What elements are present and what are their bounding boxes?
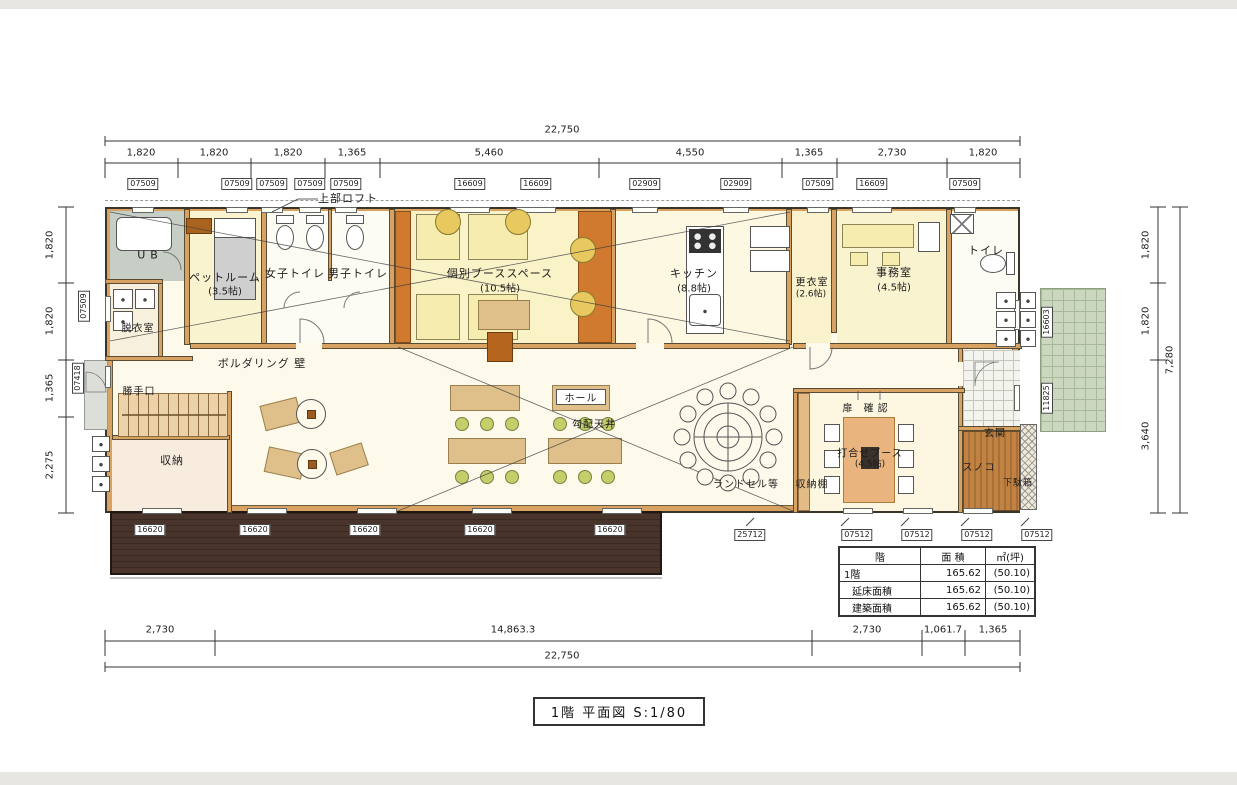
washbasin (1020, 330, 1036, 347)
area-tsubo: (50.10) (986, 582, 1036, 599)
hall-chair (480, 470, 494, 484)
toilet-tank (276, 215, 294, 224)
toilet-tank (306, 215, 324, 224)
washer (113, 289, 133, 309)
toilet-tank (346, 215, 364, 224)
dim-bottom-1: 14,863.3 (491, 625, 536, 636)
room-label-booth-space-size: (10.5帖) (480, 280, 520, 295)
window-code: 16620 (349, 524, 380, 536)
window-code: 16609 (520, 178, 551, 190)
door-gap (806, 343, 830, 349)
dim-bottom-2: 2,730 (853, 625, 882, 636)
washbasin (996, 292, 1016, 309)
area-table-header-row: 階 面 積 ㎡(坪) (839, 547, 1035, 565)
room-label-kitchen-door: 勝手口 (123, 383, 156, 398)
washbasin (996, 311, 1016, 328)
room-label-pet-room-size: (3.5帖) (208, 283, 242, 298)
room-label-bouldering: ボルダリング 壁 (218, 355, 307, 371)
copier (918, 222, 940, 252)
window-code: 11825 (1041, 382, 1053, 413)
toilet-bowl (276, 225, 294, 250)
window-code: 07509 (949, 178, 980, 190)
window-code: 07512 (1021, 529, 1052, 541)
window (843, 508, 873, 514)
window-code: 07509 (802, 178, 833, 190)
area-table-col-floor: 階 (839, 547, 921, 565)
meeting-chair (898, 476, 914, 494)
wall (831, 209, 837, 333)
area-table-row: 延床面積 165.62 (50.10) (839, 582, 1035, 599)
window-code: 07509 (127, 178, 158, 190)
window (723, 207, 749, 213)
hall-chair (505, 470, 519, 484)
room-label-sloped-ceiling: 勾配天井 (572, 416, 616, 431)
scan-edge-bottom (0, 772, 1237, 785)
window (852, 207, 892, 213)
window-code: 16620 (239, 524, 270, 536)
booth-stool (487, 332, 513, 362)
dim-top-total: 22,750 (545, 125, 580, 136)
dim-top-8: 1,820 (969, 148, 998, 159)
window (807, 207, 829, 213)
stove (689, 229, 721, 253)
room-label-meeting-booth-size: (4.5帖) (855, 457, 885, 470)
outdoor-unit (92, 456, 110, 472)
scan-edge-top (0, 0, 1237, 9)
window (602, 508, 642, 514)
booth-round-table (570, 237, 596, 263)
booth-square-table (478, 300, 530, 330)
hall-chair (505, 417, 519, 431)
dim-right-1: 1,820 (1141, 307, 1152, 336)
hall-table (548, 438, 622, 464)
dim-bottom-4: 1,365 (979, 625, 1008, 636)
window-code: 16620 (464, 524, 495, 536)
office-desk (842, 224, 914, 248)
wall (105, 356, 193, 361)
bathtub (116, 217, 172, 251)
window (357, 508, 397, 514)
outdoor-unit (92, 476, 110, 492)
dim-bottom-3: 1,061.7 (924, 625, 962, 636)
window (632, 207, 658, 213)
kitchen-sink (689, 294, 721, 326)
room-label-changing-room-size: (2.6帖) (796, 287, 826, 300)
room-label-door-check: 扉 確認 (842, 400, 891, 415)
room-storage (112, 440, 228, 511)
dim-top-7: 2,730 (878, 148, 907, 159)
room-label-kitchen-size: (8.8帖) (677, 280, 711, 295)
hall-chair (553, 470, 567, 484)
window-code: 02909 (720, 178, 751, 190)
door-gap (296, 343, 322, 349)
shoe-box-hatch (1020, 424, 1037, 510)
window-code: 16609 (856, 178, 887, 190)
room-label-mens-toilet: 男子トイレ (328, 265, 388, 281)
window-code: 07512 (841, 529, 872, 541)
window-code: 25712 (734, 529, 765, 541)
room-label-randoseru: ランドセル等 (713, 476, 779, 491)
office-chair (850, 252, 868, 266)
washbasin (1020, 311, 1036, 328)
booth-wood-divider (395, 211, 411, 343)
hall-sofa (450, 385, 520, 411)
dim-top-3: 1,365 (338, 148, 367, 159)
dim-left-1: 1,820 (45, 307, 56, 336)
room-label-toilet: トイレ (968, 242, 1004, 258)
toilet-tank (1006, 252, 1015, 275)
booth-wood-divider (578, 211, 612, 343)
window-code: 02909 (629, 178, 660, 190)
area-value: 165.62 (921, 599, 986, 617)
area-table-row: 1階 165.62 (50.10) (839, 565, 1035, 582)
booth-round-table (570, 291, 596, 317)
dim-right-0: 1,820 (1141, 231, 1152, 260)
area-floor: 延床面積 (839, 582, 921, 599)
dim-top-5: 4,550 (676, 148, 705, 159)
window (247, 508, 287, 514)
room-label-sunoko: スノコ (963, 459, 996, 474)
area-table-row: 建築面積 165.62 (50.10) (839, 599, 1035, 617)
outdoor-unit (92, 436, 110, 452)
room-label-shelf: 収納棚 (796, 476, 829, 491)
window-code: 07512 (961, 529, 992, 541)
pet-bed-pillow (214, 218, 256, 238)
hand-wash-unit (950, 214, 974, 234)
toilet-bowl (346, 225, 364, 250)
room-label-womens-toilet: 女子トイレ (265, 265, 325, 281)
booth-bench (416, 294, 460, 340)
dim-top-2: 1,820 (274, 148, 303, 159)
hall-chair (553, 417, 567, 431)
washbasin (1020, 292, 1036, 309)
window-code: 07418 (72, 362, 84, 393)
booth-round-table (505, 209, 531, 235)
washer (135, 289, 155, 309)
dim-bottom-total: 22,750 (545, 651, 580, 662)
window (261, 207, 283, 213)
hall-chair (578, 470, 592, 484)
window (299, 207, 321, 213)
window (132, 207, 154, 213)
area-floor: 1階 (839, 565, 921, 582)
wall (793, 388, 965, 393)
window-code: 07509 (330, 178, 361, 190)
meeting-chair (898, 424, 914, 442)
dim-top-0: 1,820 (127, 148, 156, 159)
window (105, 296, 111, 322)
area-floor: 建築面積 (839, 599, 921, 617)
area-value: 165.62 (921, 582, 986, 599)
hall-chair (455, 470, 469, 484)
window (963, 508, 993, 514)
window-code: 07512 (901, 529, 932, 541)
hall-chair (480, 417, 494, 431)
dim-left-0: 1,820 (45, 231, 56, 260)
window (105, 366, 111, 388)
room-label-shoe-box: 下駄箱 (1003, 476, 1033, 489)
dim-right-total: 7,280 (1165, 346, 1176, 375)
wall (105, 279, 163, 284)
roof-overhang-dashed-line (105, 200, 1020, 201)
dim-right-2: 3,640 (1141, 422, 1152, 451)
wood-deck (110, 511, 662, 575)
door-gap (958, 362, 963, 386)
area-value: 165.62 (921, 565, 986, 582)
window (954, 207, 976, 213)
round-stool-core (307, 410, 316, 419)
area-tsubo: (50.10) (986, 565, 1036, 582)
window-code: 07509 (221, 178, 252, 190)
window (1014, 385, 1020, 411)
genkan-tile-floor (963, 350, 1020, 428)
window-code: 07509 (294, 178, 325, 190)
area-tsubo: (50.10) (986, 599, 1036, 617)
room-label-hall: ホール (565, 390, 598, 405)
window (142, 508, 182, 514)
window-code: 16603 (1041, 306, 1053, 337)
room-label-entrance: 玄関 (984, 425, 1006, 440)
shelf-strip (798, 393, 810, 511)
hall-table (448, 438, 526, 464)
room-label-dressing-room: 脱衣室 (122, 320, 155, 335)
room-label-loft-note: 上部ロフト (318, 190, 378, 206)
room-label-ub: UB (137, 249, 163, 262)
dim-top-6: 1,365 (795, 148, 824, 159)
wall (158, 283, 163, 360)
toilet-bowl (306, 225, 324, 250)
title-block: 1階 平面図 S:1/80 (533, 697, 705, 726)
window-code: 07509 (256, 178, 287, 190)
kitchen-counter (750, 226, 790, 248)
area-table-col-area: 面 積 (921, 547, 986, 565)
window-code: 16609 (454, 178, 485, 190)
window-code: 07509 (78, 290, 90, 321)
hall-chair (601, 470, 615, 484)
window (335, 207, 357, 213)
room-label-storage: 収納 (160, 452, 184, 468)
hall-chair (455, 417, 469, 431)
stairs (118, 393, 228, 437)
window (472, 508, 512, 514)
floor-plan-sheet: 22,750 1,820 1,820 1,820 1,365 5,460 4,5… (0, 0, 1237, 785)
window (226, 207, 248, 213)
dim-bottom-0: 2,730 (146, 625, 175, 636)
dim-left-3: 2,275 (45, 451, 56, 480)
window-code: 16620 (134, 524, 165, 536)
dim-top-4: 5,460 (475, 148, 504, 159)
window-code: 16620 (594, 524, 625, 536)
kitchen-counter (750, 250, 790, 272)
booth-round-table (435, 209, 461, 235)
area-table: 階 面 積 ㎡(坪) 1階 165.62 (50.10) 延床面積 165.62… (838, 546, 1036, 617)
pet-cabinet (186, 218, 212, 234)
dim-top-1: 1,820 (200, 148, 229, 159)
round-stool-core (308, 460, 317, 469)
washbasin (996, 330, 1016, 347)
area-table-col-unit: ㎡(坪) (986, 547, 1036, 565)
dim-left-2: 1,365 (45, 374, 56, 403)
window (903, 508, 933, 514)
door-gap (636, 343, 664, 349)
room-label-office-size: (4.5帖) (877, 279, 911, 294)
meeting-chair (824, 424, 840, 442)
